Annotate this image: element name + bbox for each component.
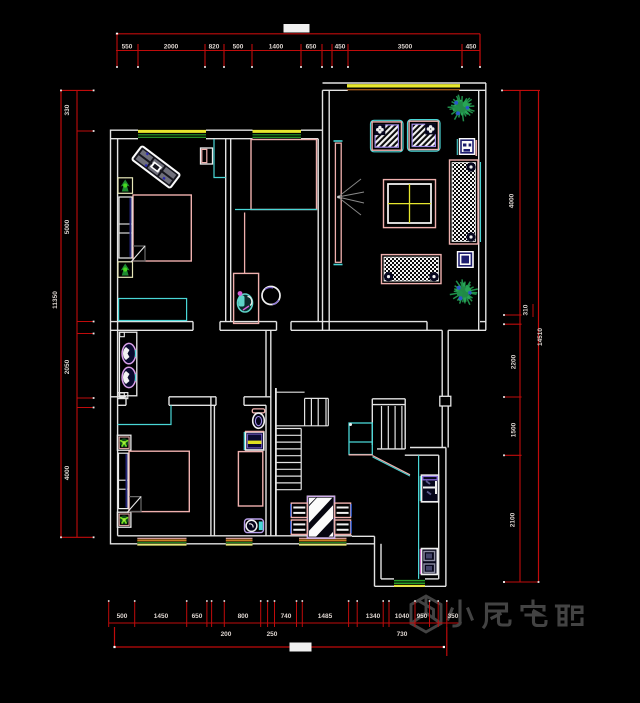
svg-text:310: 310 [523, 304, 530, 315]
svg-text:1450: 1450 [154, 613, 169, 620]
svg-text:3500: 3500 [398, 44, 413, 51]
svg-text:450: 450 [466, 44, 477, 51]
svg-text:1040: 1040 [395, 613, 410, 620]
svg-text:820: 820 [209, 44, 220, 51]
svg-text:1500: 1500 [511, 422, 518, 437]
svg-text:1400: 1400 [269, 44, 284, 51]
svg-text:450: 450 [335, 44, 346, 51]
svg-text:200: 200 [221, 631, 232, 638]
svg-text:800: 800 [238, 613, 249, 620]
svg-text:11350: 11350 [52, 291, 59, 309]
svg-text:2100: 2100 [510, 512, 517, 527]
svg-text:2200: 2200 [511, 354, 518, 369]
svg-text:4000: 4000 [64, 465, 71, 480]
svg-text:2050: 2050 [64, 359, 71, 374]
svg-text:950: 950 [417, 613, 428, 620]
svg-text:650: 650 [306, 44, 317, 51]
svg-text:4000: 4000 [509, 193, 516, 208]
svg-text:550: 550 [122, 44, 133, 51]
svg-text:350: 350 [448, 613, 459, 620]
svg-text:250: 250 [267, 631, 278, 638]
svg-text:1485: 1485 [318, 613, 333, 620]
svg-text:14510: 14510 [537, 328, 544, 346]
svg-text:5000: 5000 [64, 219, 71, 234]
svg-text:500: 500 [117, 613, 128, 620]
svg-text:740: 740 [281, 613, 292, 620]
svg-text:330: 330 [64, 104, 71, 115]
svg-text:500: 500 [233, 44, 244, 51]
svg-text:650: 650 [192, 613, 203, 620]
svg-text:1340: 1340 [366, 613, 381, 620]
svg-text:2000: 2000 [164, 44, 179, 51]
svg-text:730: 730 [397, 631, 408, 638]
